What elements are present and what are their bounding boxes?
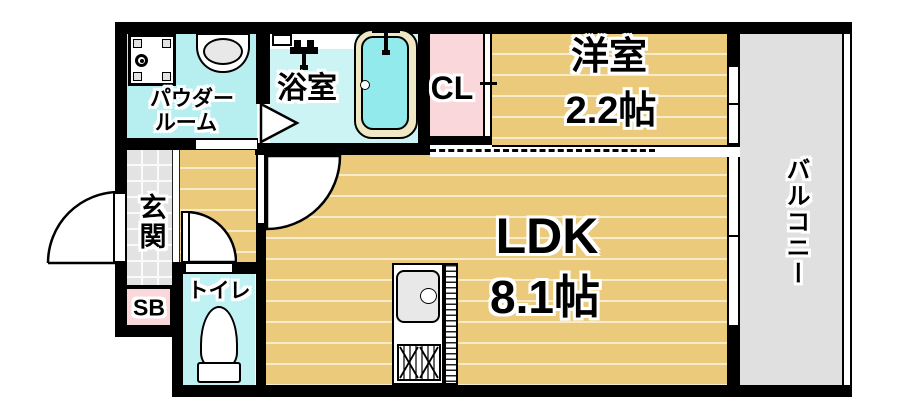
toilet-door-opening xyxy=(186,264,232,272)
wall xyxy=(255,143,430,155)
tub-overflow-drain xyxy=(360,80,370,90)
bathroom-shelf xyxy=(272,34,292,46)
wall xyxy=(418,34,430,145)
bathroom-door-icon xyxy=(259,102,301,144)
ldk-door-swing-arc xyxy=(266,155,342,231)
balcony-railing xyxy=(842,34,852,385)
closet-label: CL xyxy=(431,72,474,104)
wall xyxy=(256,34,270,104)
pan-corner xyxy=(133,39,142,48)
window-meeting-rail xyxy=(729,103,738,105)
ldk-label: LDK xyxy=(496,211,599,261)
wall xyxy=(418,136,492,145)
ldk-size: 8.1帖 xyxy=(490,274,600,320)
powder-room-label-line2: ルーム xyxy=(155,113,217,134)
pan-corner xyxy=(162,72,171,81)
pan-corner xyxy=(133,72,142,81)
balcony-label: バルコニー xyxy=(783,157,807,287)
washing-machine-pan-icon xyxy=(128,34,176,86)
wall xyxy=(115,22,127,192)
kitchen-sink-icon xyxy=(396,270,440,323)
powder-room-sliding-door xyxy=(195,139,258,150)
pan-drain xyxy=(135,54,148,67)
western-room-size: 2.2帖 xyxy=(566,92,657,130)
gas-stove-icon xyxy=(397,344,441,381)
wall xyxy=(727,22,740,67)
floor-plan: パウダー ルーム 浴室 CL 洋室 2.2帖 バルコニー 玄関 SB トイレ L… xyxy=(0,0,902,416)
western-room-partition-line xyxy=(492,145,740,147)
western-room-label: 洋室 xyxy=(571,38,647,76)
kitchen-counter-edge xyxy=(444,263,458,385)
entrance-door-swing-arc xyxy=(46,191,121,266)
western-room-window xyxy=(727,67,740,143)
toilet-tank-icon xyxy=(197,362,241,383)
shoe-box-label: SB xyxy=(133,297,165,320)
toilet-door-swing-arc xyxy=(185,211,237,263)
wall xyxy=(727,325,740,397)
bathtub-faucet-icon xyxy=(372,23,402,59)
bathroom-label: 浴室 xyxy=(277,74,337,104)
shower-fixture-icon xyxy=(290,38,324,74)
toilet-door-leaf xyxy=(181,211,190,263)
closet-door-handle xyxy=(480,82,497,85)
window-meeting-rail xyxy=(729,235,738,237)
wall xyxy=(127,285,172,289)
ldk-window xyxy=(727,155,740,325)
powder-room-sliding-track xyxy=(133,142,195,145)
wall xyxy=(256,223,266,397)
ldk-door-leaf xyxy=(256,153,266,225)
entrance-label: 玄関 xyxy=(137,193,164,251)
powder-room-label-line1: パウダー xyxy=(150,89,234,110)
western-room-sliding-track xyxy=(430,149,655,152)
closet-door xyxy=(483,34,492,136)
wall xyxy=(172,385,852,397)
pan-corner xyxy=(162,39,171,48)
wall xyxy=(170,285,183,331)
entrance-step-strip xyxy=(172,150,180,262)
toilet-label: トイレ xyxy=(188,281,251,302)
